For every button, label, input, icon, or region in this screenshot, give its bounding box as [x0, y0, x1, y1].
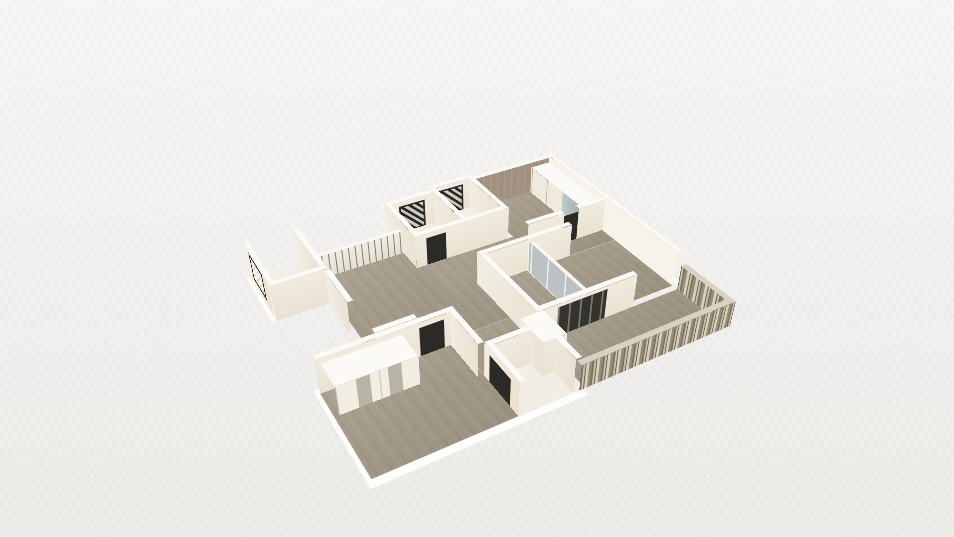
cabinet-panel-gray — [388, 362, 404, 396]
floor-plan-3d-viewport[interactable] — [0, 0, 954, 537]
floor-plan-model — [247, 180, 740, 488]
cabinet-panel-gray — [356, 374, 373, 408]
